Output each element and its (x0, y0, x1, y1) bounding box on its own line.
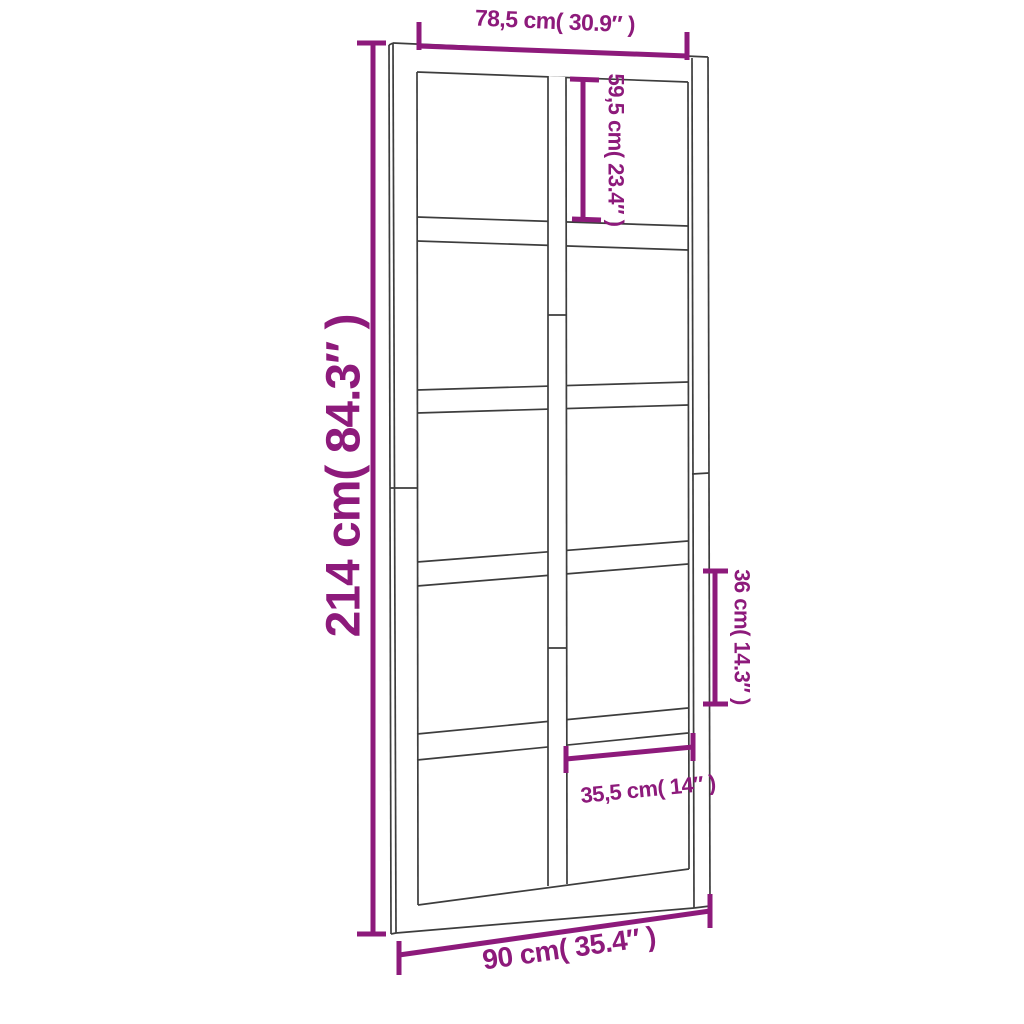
dim-upper-pane-height: 59,5 cm( 23.4″ ) (570, 74, 629, 227)
left-stile-inner-edge (417, 72, 418, 905)
right-stile-inner-edge (688, 82, 689, 869)
dimension-label: 214 cm( 84.3″ ) (318, 315, 371, 638)
dimension-label: 36 cm( 14.3″ ) (730, 569, 755, 705)
dimension-tick (570, 79, 599, 80)
diagram-canvas: 78,5 cm( 30.9″ ) 214 cm( 84.3″ ) 59,5 cm… (0, 0, 1024, 1024)
right-edge-joint (692, 473, 709, 474)
door-dimension-diagram: 78,5 cm( 30.9″ ) 214 cm( 84.3″ ) 59,5 cm… (0, 0, 1024, 1024)
dim-top-width: 78,5 cm( 30.9″ ) (419, 5, 687, 60)
door-bottom-left-sliver (391, 933, 396, 934)
dim-overall-height: 214 cm( 84.3″ ) (318, 43, 387, 934)
dim-lower-pane-height: 36 cm( 14.3″ ) (703, 569, 755, 705)
dimension-label: 35,5 cm( 14″ ) (579, 770, 717, 808)
dimension-label: 78,5 cm( 30.9″ ) (474, 5, 635, 38)
door-left-outer-edge (389, 45, 391, 934)
dimension-tick (572, 219, 601, 220)
dimension-line (566, 747, 693, 759)
dimension-line (419, 46, 687, 56)
dim-overall-width: 90 cm( 35.4″ ) (399, 894, 710, 975)
dimension-label: 59,5 cm( 23.4″ ) (604, 74, 629, 227)
